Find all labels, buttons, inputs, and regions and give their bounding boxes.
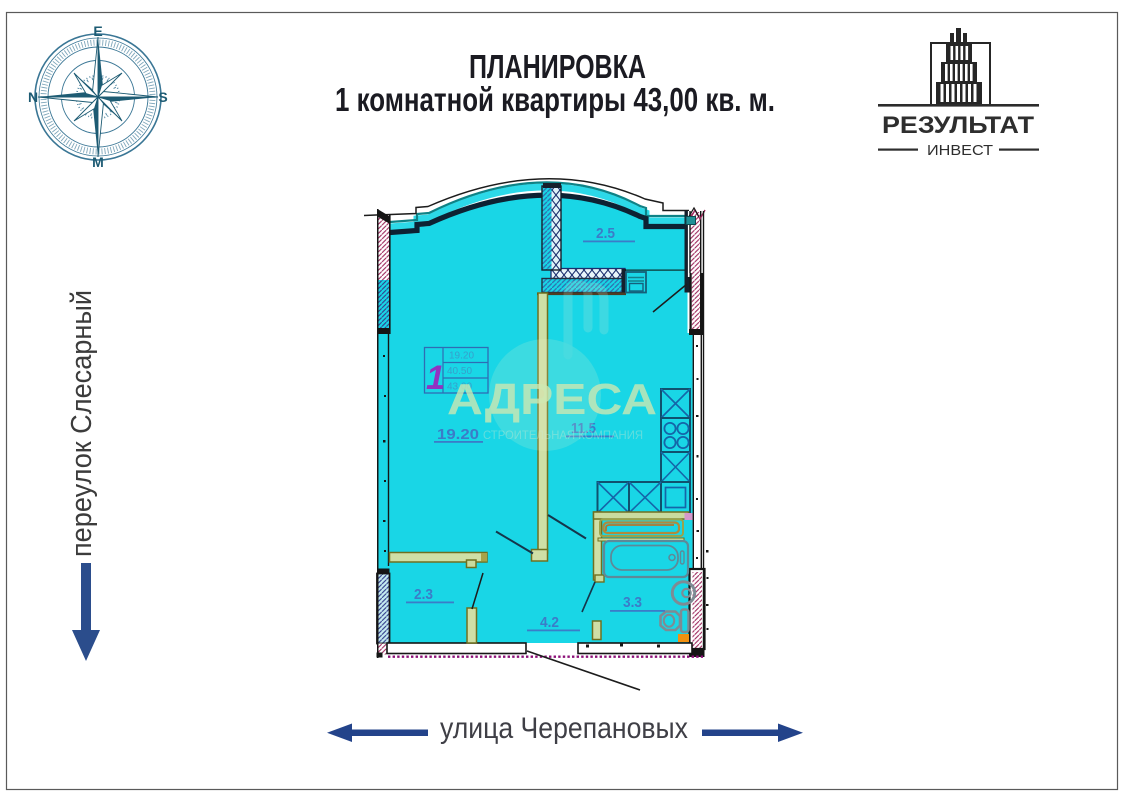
svg-text:переулок Слесарный: переулок Слесарный: [66, 290, 98, 557]
svg-text:19.20: 19.20: [449, 351, 474, 362]
svg-text:улица Черепановых: улица Черепановых: [440, 712, 688, 745]
svg-text:1: 1: [426, 359, 445, 397]
svg-text:3.3: 3.3: [623, 595, 642, 611]
svg-text:РЕЗУЛЬТАТ: РЕЗУЛЬТАТ: [882, 112, 1034, 139]
svg-text:2.3: 2.3: [414, 587, 433, 603]
svg-text:E: E: [93, 23, 102, 39]
svg-text:M: M: [92, 154, 104, 170]
svg-text:4.2: 4.2: [540, 615, 559, 631]
svg-text:ИНВЕСТ: ИНВЕСТ: [927, 142, 993, 159]
svg-text:S: S: [158, 89, 167, 105]
svg-text:1 комнатной квартиры 43,00 кв.: 1 комнатной квартиры 43,00 кв. м.: [335, 81, 775, 118]
svg-text:N: N: [28, 89, 38, 105]
svg-text:19.20: 19.20: [437, 427, 479, 443]
svg-text:АДРЕСА: АДРЕСА: [447, 375, 657, 424]
svg-text:СТРОИТЕЛЬНАЯ КОМПАНИЯ: СТРОИТЕЛЬНАЯ КОМПАНИЯ: [483, 428, 643, 442]
svg-text:ПЛАНИРОВКА: ПЛАНИРОВКА: [469, 48, 646, 85]
svg-text:2.5: 2.5: [596, 226, 615, 242]
